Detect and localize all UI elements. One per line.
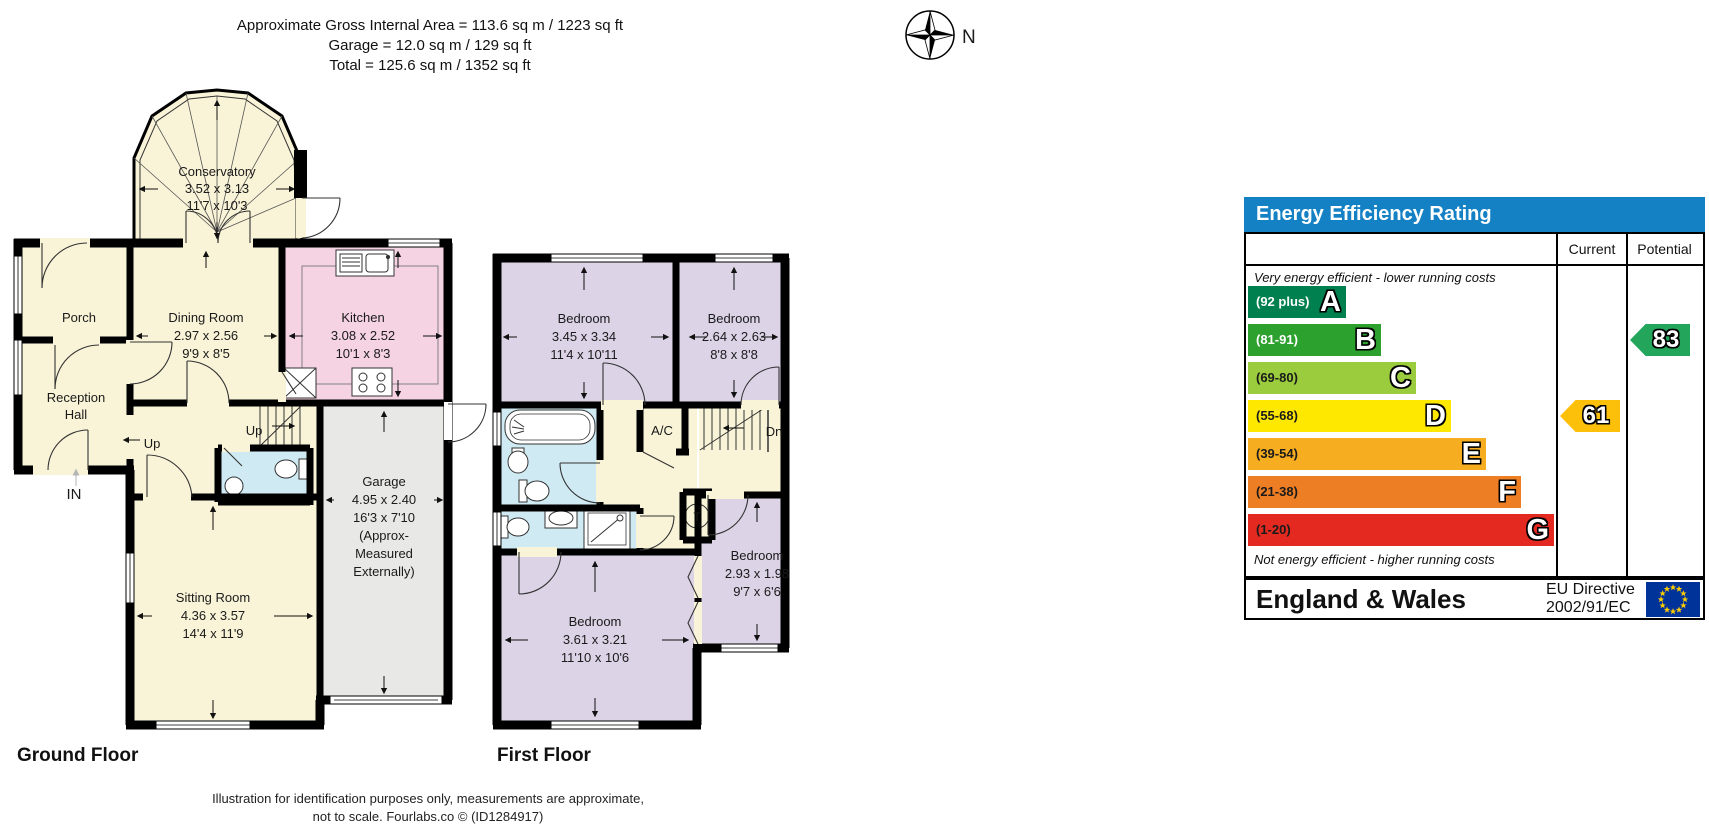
epc-band-a-letter: A [1320,286,1341,318]
conservatory-imperial: 11'7 x 10'3 [186,198,247,213]
wc-basin-icon [225,477,243,495]
epc-footer: England & Wales EU Directive 2002/91/EC [1244,578,1705,620]
sink-icon [336,250,394,276]
epc-column-divider-2 [1626,234,1628,576]
epc-band-f: (21-38) F [1248,476,1521,508]
bedroom4-metric: 2.93 x 1.98 [725,566,789,581]
epc-band-d-letter: D [1425,400,1446,432]
epc-band-a: (92 plus) A [1248,286,1346,318]
bedroom1-imperial: 11'4 x 10'11 [550,347,617,362]
hall-name-1: Reception [47,390,106,405]
epc-band-c-range: (69-80) [1248,370,1298,385]
epc-band-a-range: (92 plus) [1248,294,1309,309]
garage-area-line: Garage = 12.0 sq m / 129 sq ft [120,36,740,56]
epc-directive: EU Directive 2002/91/EC [1546,581,1635,617]
bedroom3-imperial: 11'10 x 10'6 [561,650,629,665]
epc-region-label: England & Wales [1256,580,1466,618]
sitting-imperial: 14'4 x 11'9 [182,626,243,641]
bath-icon [505,410,595,444]
stairs-up-label-2: Up [144,436,161,451]
epc-band-b-letter: B [1355,324,1376,356]
epc-column-divider-1 [1556,234,1558,576]
stairs-down-label: Dn [766,424,783,439]
epc-potential-header: Potential [1628,234,1701,264]
bedroom1-name: Bedroom [558,311,611,326]
garage-note-2: Measured [355,546,413,561]
epc-band-f-letter: F [1498,476,1516,508]
energy-efficiency-chart: Energy Efficiency Rating Current Potenti… [1244,197,1705,620]
bedroom3-name: Bedroom [569,614,622,629]
hob-icon [352,368,392,396]
disclaimer-line-2: not to scale. Fourlabs.co © (ID1284917) [128,808,728,826]
room-porch [20,245,130,340]
tank-label: T [693,510,701,524]
total-area-line: Total = 125.6 sq m / 1352 sq ft [120,56,740,76]
epc-band-b-range: (81-91) [1248,332,1298,347]
gross-area-summary: Approximate Gross Internal Area = 113.6 … [120,16,740,76]
shower-room-toilet-icon [500,516,529,538]
disclaimer: Illustration for identification purposes… [128,790,728,826]
epc-band-e-letter: E [1462,438,1481,470]
epc-band-e: (39-54) E [1248,438,1486,470]
epc-band-d-range: (55-68) [1248,408,1298,423]
bedroom2-name: Bedroom [708,311,761,326]
epc-top-note: Very energy efficient - lower running co… [1254,270,1496,285]
floorplan-page: Approximate Gross Internal Area = 113.6 … [0,0,1709,832]
epc-band-g: (1-20) G [1248,514,1554,546]
shower-icon [584,509,630,549]
bedroom2-metric: 2.64 x 2.63 [702,329,766,344]
gross-area-line: Approximate Gross Internal Area = 113.6 … [120,16,740,36]
kitchen-name: Kitchen [341,310,384,325]
sitting-metric: 4.36 x 3.57 [181,608,245,623]
epc-band-g-range: (1-20) [1248,522,1291,537]
conservatory-name: Conservatory [178,164,256,179]
entrance-in-label: IN [67,486,82,503]
epc-band-b: (81-91) B [1248,324,1381,356]
garage-note-1: (Approx- [359,528,409,543]
epc-band-c-letter: C [1390,362,1411,394]
conservatory-metric: 3.52 x 3.13 [185,181,249,196]
bedroom4-imperial: 9'7 x 6'6 [733,584,781,599]
epc-title: Energy Efficiency Rating [1244,197,1705,232]
epc-band-e-range: (39-54) [1248,446,1298,461]
garage-metric: 4.95 x 2.40 [352,492,416,507]
bedroom1-metric: 3.45 x 3.34 [552,329,616,344]
airing-cupboard-label: A/C [651,423,673,438]
epc-bottom-note: Not energy efficient - higher running co… [1254,552,1495,567]
epc-potential-arrow: 83 [1630,324,1690,356]
bedroom2-imperial: 8'8 x 8'8 [710,347,758,362]
epc-table: Current Potential Very energy efficient … [1244,232,1705,578]
epc-current-arrow: 61 [1560,400,1620,432]
epc-header-divider [1246,264,1703,266]
epc-band-f-range: (21-38) [1248,484,1298,499]
garage-name: Garage [362,474,405,489]
dining-metric: 2.97 x 2.56 [174,328,238,343]
shower-room-basin-icon [545,509,577,528]
stairs-up-label-1: Up [246,423,263,438]
bedroom4-name: Bedroom [731,548,784,563]
epc-directive-line-2: 2002/91/EC [1546,599,1635,617]
floorplan-drawing: Conservatory 3.52 x 3.13 11'7 x 10'3 Por… [0,80,1060,780]
compass-north-label: N [962,27,976,48]
bedroom3-metric: 3.61 x 3.21 [563,632,627,647]
room-reception-hall [20,342,130,470]
compass-icon: N [900,5,995,67]
epc-band-g-letter: G [1526,514,1549,546]
epc-current-header: Current [1558,234,1626,264]
porch-name: Porch [62,310,96,325]
epc-band-d: (55-68) D [1248,400,1451,432]
epc-directive-line-1: EU Directive [1546,581,1635,599]
epc-band-c: (69-80) C [1248,362,1416,394]
garage-imperial: 16'3 x 7'10 [353,510,415,525]
first-floor-label: First Floor [497,745,591,767]
sitting-name: Sitting Room [176,590,250,605]
disclaimer-line-1: Illustration for identification purposes… [128,790,728,808]
hall-name-2: Hall [65,407,88,422]
eu-flag-icon [1646,582,1700,617]
wc-toilet-icon [275,459,307,479]
bathroom-toilet-icon [519,480,549,502]
garage-note-3: Externally) [353,564,414,579]
kitchen-metric: 3.08 x 2.52 [331,328,395,343]
ground-floor-label: Ground Floor [17,745,138,767]
dining-name: Dining Room [168,310,243,325]
kitchen-imperial: 10'1 x 8'3 [336,346,391,361]
dining-imperial: 9'9 x 8'5 [182,346,230,361]
